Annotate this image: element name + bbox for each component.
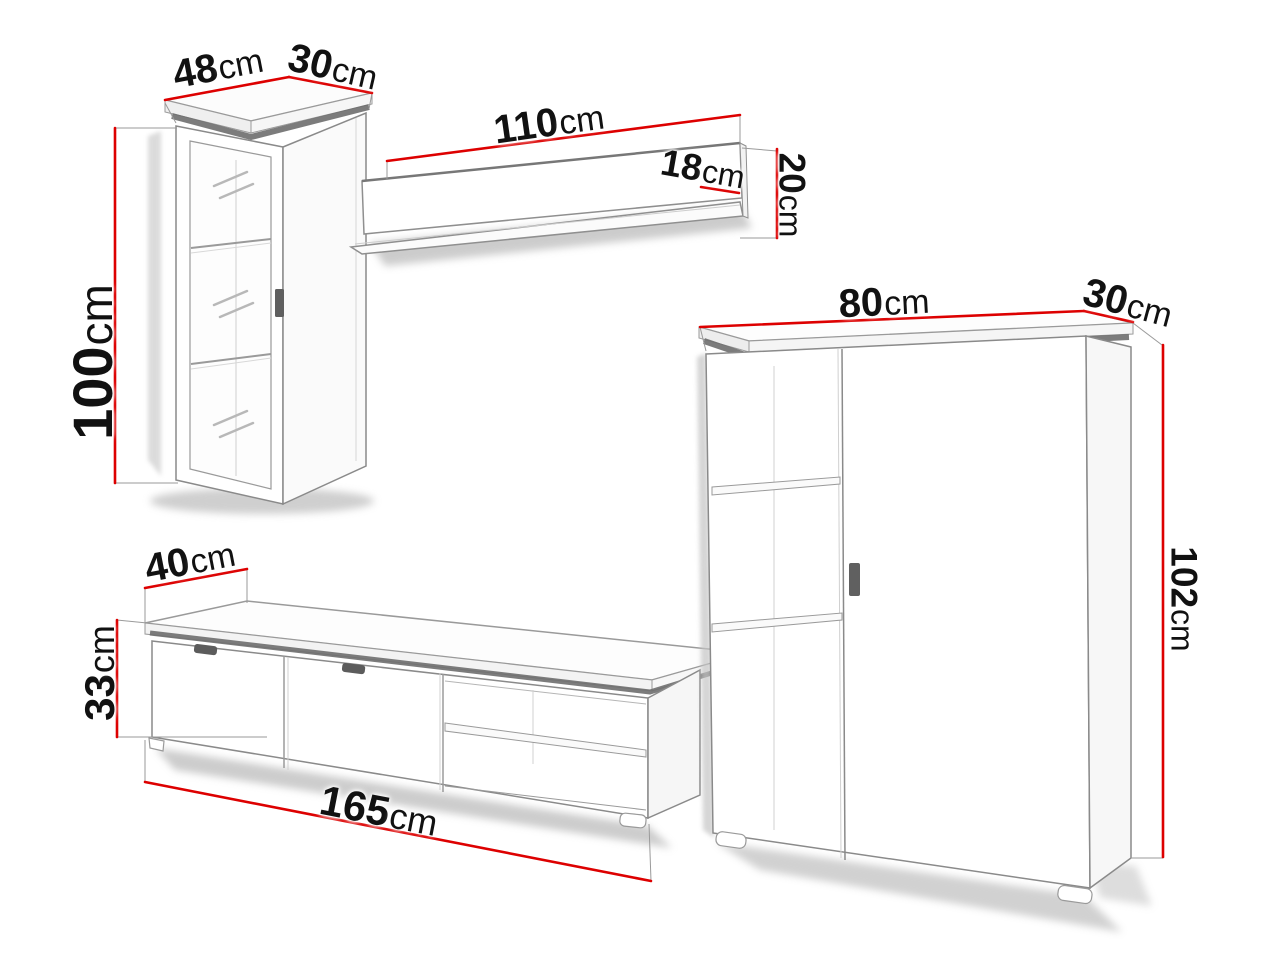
tv-stand-height-unit: cm <box>81 625 122 673</box>
wall-cabinet-width-value: 48 <box>169 46 221 98</box>
wall-shelf-height-value: 20 <box>772 153 813 194</box>
wall-cabinet-height-label: 100cm <box>65 284 121 440</box>
highboard-door-handle <box>849 563 860 596</box>
wall-shelf-depth-value: 18 <box>658 141 706 189</box>
highboard-height-label: 102cm <box>1166 546 1203 651</box>
wall-shelf-width-unit: cm <box>557 98 607 142</box>
wall-cabinet-side-face <box>283 113 366 504</box>
wall-cabinet-door-handle <box>275 289 284 317</box>
highboard-height-unit: cm <box>1165 609 1201 652</box>
tv-stand-height-value: 33 <box>76 674 123 721</box>
diagram-canvas <box>0 0 1279 959</box>
furniture-dimension-diagram: 48cm 30cm 100cm 110cm 18cm 20cm 80cm 30c… <box>0 0 1279 959</box>
wall-shelf-height-label: 20cm <box>774 153 811 238</box>
highboard-front-face <box>706 336 1090 888</box>
wall-shelf-width-value: 110 <box>491 100 561 153</box>
wall-shelf-height-unit: cm <box>773 195 809 238</box>
highboard-side-face <box>1086 336 1131 888</box>
tv-stand-foot-left <box>149 738 164 751</box>
tv-stand-depth-value: 40 <box>141 540 193 592</box>
wall-cabinet-side-shadow <box>148 131 161 476</box>
tv-stand-drawing <box>145 601 747 848</box>
highboard-drawing <box>697 311 1152 932</box>
tv-stand-height-label: 33cm <box>79 625 121 721</box>
wall-shelf-depth-unit: cm <box>699 153 747 196</box>
wall-cabinet-height-unit: cm <box>70 284 122 345</box>
highboard-width-label: 80cm <box>838 280 931 325</box>
wall-cabinet-height-value: 100 <box>61 346 124 439</box>
highboard-width-value: 80 <box>837 280 884 326</box>
wall-cabinet-drawing <box>148 77 374 514</box>
tv-stand-width-unit: cm <box>386 795 441 844</box>
highboard-height-value: 102 <box>1164 546 1205 608</box>
highboard-width-unit: cm <box>883 283 930 323</box>
tv-stand-foot-right <box>619 813 646 829</box>
